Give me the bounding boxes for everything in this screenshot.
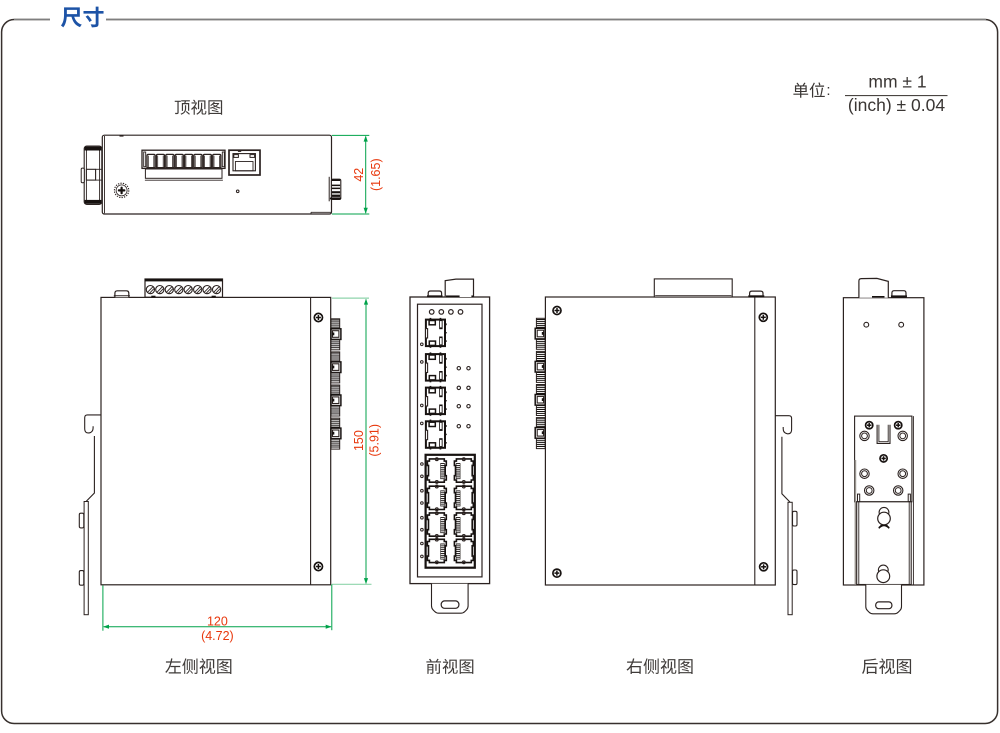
- svg-text:(4.72): (4.72): [201, 629, 234, 643]
- svg-text:120: 120: [207, 614, 228, 628]
- svg-text:(inch) ± 0.04: (inch) ± 0.04: [848, 95, 945, 115]
- svg-text:(1.65): (1.65): [369, 158, 383, 191]
- svg-text::: :: [826, 82, 830, 99]
- svg-text:(5.91): (5.91): [367, 424, 381, 457]
- svg-text:mm ± 1: mm ± 1: [868, 71, 926, 91]
- svg-text:42: 42: [352, 168, 366, 182]
- svg-text:150: 150: [352, 430, 366, 451]
